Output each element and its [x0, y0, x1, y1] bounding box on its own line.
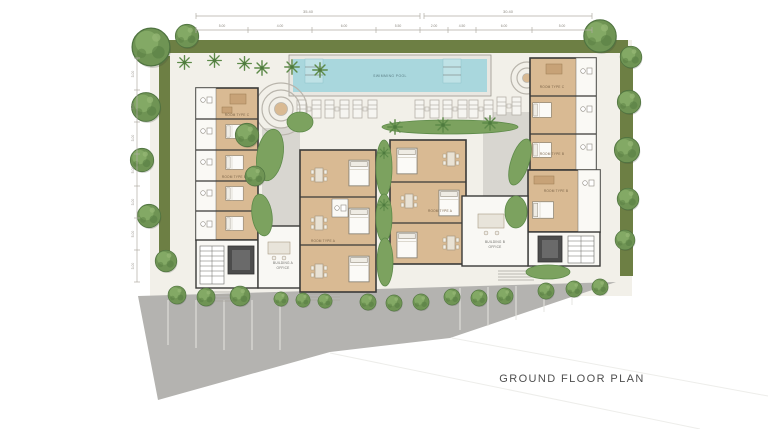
dim-segment: 6.00	[501, 24, 508, 28]
pool-label: SWIMMING POOL	[373, 74, 407, 78]
room-label: ROOM TYPE B	[540, 152, 564, 156]
dim-segment: 6.00	[341, 24, 348, 28]
palm-icon	[483, 116, 497, 130]
dim-segment: 5.50	[395, 24, 402, 28]
dim-segment: 5.00	[219, 24, 226, 28]
dim-segment: 5.00	[131, 231, 135, 238]
floor-plan-page: SWIMMING POOL	[0, 0, 768, 429]
building-b-stairs	[568, 236, 594, 263]
dim-segment: 5.00	[131, 103, 135, 110]
palm-icon	[178, 56, 192, 70]
room-label: ROOM TYPE C	[225, 113, 250, 117]
bed-icon	[533, 103, 552, 118]
bed-icon	[349, 160, 369, 186]
tree-icon	[132, 28, 171, 68]
bed-icon	[397, 232, 417, 258]
office-label: BUILDING A	[273, 261, 294, 265]
palm-icon	[313, 63, 327, 77]
bed-icon	[349, 208, 369, 234]
dim-segment: 3.00	[131, 199, 135, 206]
bed-icon	[226, 156, 244, 170]
palm-icon	[378, 147, 389, 158]
room-label: ROOM TYPE B	[222, 175, 246, 179]
dim-top-overall-right: 30.40	[503, 9, 514, 14]
bed-icon	[226, 187, 244, 201]
bed-icon	[349, 256, 369, 282]
page-title: GROUND FLOOR PLAN	[499, 373, 644, 385]
room-label: ROOM TYPE A	[311, 239, 336, 243]
office-label: OFFICE	[277, 266, 290, 270]
palm-icon	[208, 54, 222, 68]
dim-segment: 4.50	[459, 24, 466, 28]
bed-icon	[397, 148, 417, 174]
room-label: ROOM TYPE B	[544, 189, 568, 193]
office-label: BUILDING B	[485, 240, 505, 244]
building-a-elevator	[228, 246, 254, 274]
tree-icon	[137, 204, 161, 229]
palm-icon	[238, 57, 252, 71]
dim-segment: 5.00	[131, 167, 135, 174]
dim-segment: 3.00	[131, 71, 135, 78]
palm-icon	[285, 60, 299, 74]
palm-icon	[388, 120, 402, 134]
dim-segment: 3.00	[131, 263, 135, 270]
palm-icon	[378, 199, 389, 210]
floor-plan-canvas: SWIMMING POOL	[0, 0, 768, 429]
office-label: OFFICE	[489, 245, 502, 249]
dim-segment: 2.00	[431, 24, 438, 28]
palm-icon	[255, 61, 269, 75]
dim-segment: 3.00	[131, 135, 135, 142]
palm-icon	[436, 118, 450, 132]
dim-segment: 4.00	[277, 24, 284, 28]
building-b-elevator	[538, 236, 562, 262]
tree-icon	[132, 93, 162, 123]
building-a-stairs	[200, 246, 224, 284]
room-label: ROOM TYPE A	[428, 209, 453, 213]
bed-icon	[226, 217, 244, 231]
bed-icon	[533, 202, 554, 219]
room-label: ROOM TYPE C	[540, 85, 565, 89]
dim-top-overall-left: 35.40	[303, 9, 314, 14]
dim-segment: 5.00	[559, 24, 566, 28]
